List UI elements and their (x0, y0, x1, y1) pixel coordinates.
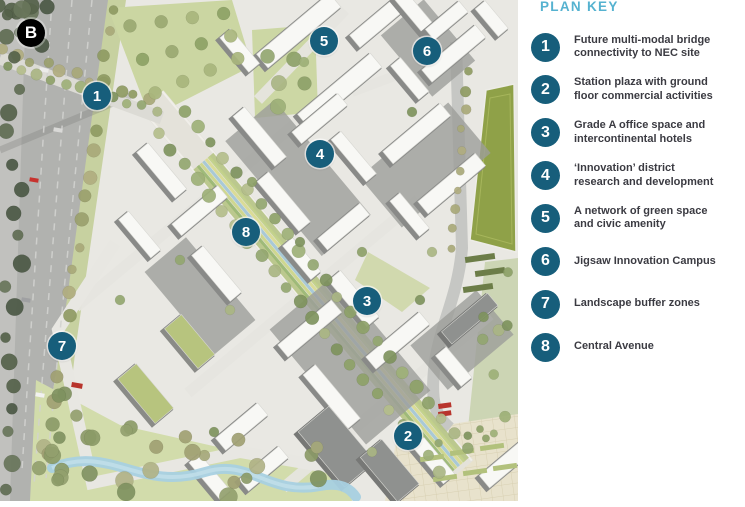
map-marker-8: 8 (232, 218, 260, 246)
plan-key-item-4: 4 ‘Innovation’ district research and dev… (531, 154, 745, 198)
map-marker-1: 1 (83, 82, 111, 110)
key-item-label: Future multi-modal bridge connectivity t… (574, 34, 745, 61)
plan-key-panel: PLAN KEY 1 Future multi-modal bridge con… (528, 0, 745, 390)
map-marker-2: 2 (394, 422, 422, 450)
map-marker-5: 5 (310, 27, 338, 55)
key-item-label: ‘Innovation’ district research and devel… (574, 162, 745, 189)
plan-key-item-8: 8 Central Avenue (531, 325, 745, 369)
plan-key-item-7: 7 Landscape buffer zones (531, 282, 745, 326)
key-number-badge: 3 (531, 118, 560, 147)
key-number-badge: 2 (531, 75, 560, 104)
plan-key-item-3: 3 Grade A office space and intercontinen… (531, 111, 745, 155)
key-item-label: Station plaza with ground floor commerci… (574, 76, 745, 103)
plan-key-item-2: 2 Station plaza with ground floor commer… (531, 68, 745, 112)
key-item-label: A network of green space and civic ameni… (574, 205, 745, 232)
key-number-badge: 4 (531, 161, 560, 190)
plan-key-item-5: 5 A network of green space and civic ame… (531, 196, 745, 240)
masterplan-map: B 12345678 (0, 0, 518, 501)
key-number-badge: 5 (531, 204, 560, 233)
map-marker-4: 4 (306, 140, 334, 168)
key-number-badge: 7 (531, 290, 560, 319)
key-item-label: Grade A office space and intercontinenta… (574, 119, 745, 146)
key-number-badge: 8 (531, 333, 560, 362)
map-marker-3: 3 (353, 287, 381, 315)
plan-key-title: PLAN KEY (540, 0, 619, 14)
key-item-label: Jigsaw Innovation Campus (574, 255, 745, 269)
key-item-label: Landscape buffer zones (574, 297, 745, 311)
map-marker-6: 6 (413, 37, 441, 65)
key-item-label: Central Avenue (574, 340, 745, 354)
plan-key-item-6: 6 Jigsaw Innovation Campus (531, 239, 745, 283)
map-label-badge: B (17, 19, 45, 47)
plan-key-item-1: 1 Future multi-modal bridge connectivity… (531, 25, 745, 69)
map-marker-7: 7 (48, 332, 76, 360)
map-render (0, 0, 518, 501)
key-number-badge: 6 (531, 247, 560, 276)
masterplan-figure: B 12345678 PLAN KEY 1 Future multi-modal… (0, 0, 745, 507)
key-number-badge: 1 (531, 33, 560, 62)
